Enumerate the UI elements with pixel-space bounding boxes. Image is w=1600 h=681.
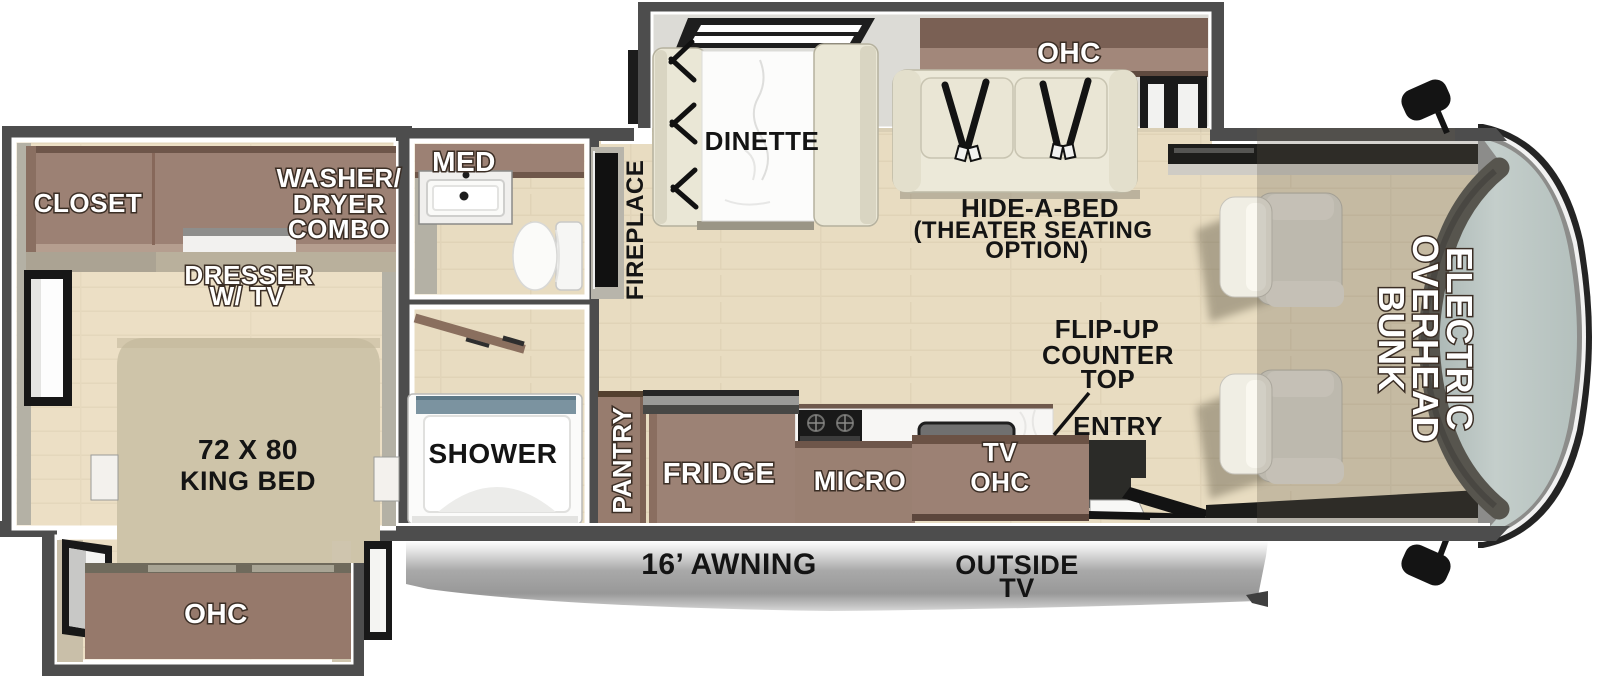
svg-text:BUNK: BUNK	[1371, 286, 1412, 392]
svg-text:W/ TV: W/ TV	[210, 281, 285, 311]
svg-text:TV: TV	[999, 573, 1035, 603]
svg-text:OHC: OHC	[184, 598, 248, 629]
svg-text:DINETTE: DINETTE	[705, 126, 820, 156]
svg-text:ENTRY: ENTRY	[1073, 411, 1163, 441]
svg-text:SHOWER: SHOWER	[429, 438, 558, 469]
svg-text:16’ AWNING: 16’ AWNING	[641, 548, 817, 581]
svg-text:TOP: TOP	[1081, 364, 1135, 394]
svg-text:MICRO: MICRO	[814, 466, 907, 496]
svg-text:PANTRY: PANTRY	[607, 407, 637, 514]
svg-text:72 X 80: 72 X 80	[198, 434, 298, 465]
svg-text:COMBO: COMBO	[288, 214, 390, 244]
svg-text:KING BED: KING BED	[180, 466, 316, 496]
svg-text:OHC: OHC	[1037, 37, 1101, 68]
svg-text:OPTION): OPTION)	[985, 237, 1089, 264]
svg-text:FRIDGE: FRIDGE	[663, 458, 776, 490]
svg-text:FIREPLACE: FIREPLACE	[622, 160, 649, 301]
svg-text:MED: MED	[432, 146, 496, 177]
svg-text:TV: TV	[983, 437, 1017, 467]
svg-text:CLOSET: CLOSET	[34, 188, 142, 218]
svg-text:OHC: OHC	[970, 467, 1029, 497]
